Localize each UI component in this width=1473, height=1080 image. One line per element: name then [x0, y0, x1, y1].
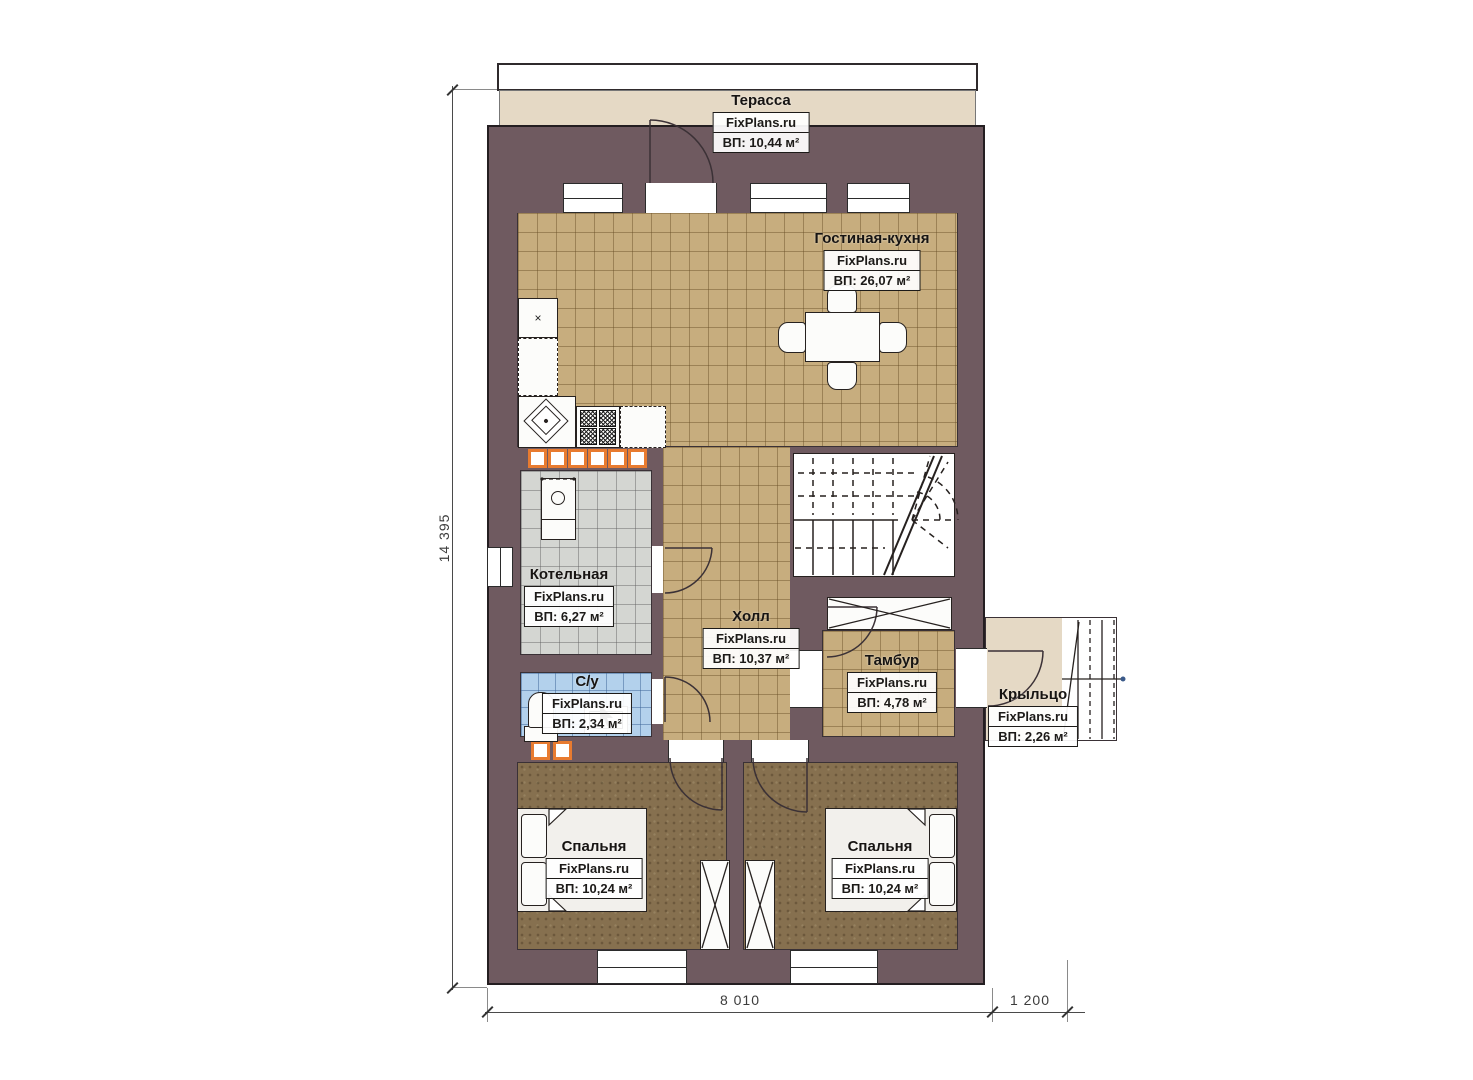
- pillow: [929, 862, 955, 906]
- hall-floor: [663, 447, 790, 740]
- dimension-width-porch-label: 1 200: [1000, 992, 1060, 1008]
- room-name: С/у: [575, 673, 598, 690]
- wc-door-opening: [652, 679, 663, 724]
- wall-marker: [608, 449, 627, 468]
- wall-marker: [528, 449, 547, 468]
- window: [790, 950, 878, 984]
- wall-marker: [588, 449, 607, 468]
- room-area: ВП: 2,26 м²: [989, 727, 1077, 746]
- pillow: [521, 814, 547, 858]
- room-area: ВП: 10,24 м²: [833, 879, 928, 898]
- kitchen-counter: [518, 338, 558, 396]
- brand-watermark: FixPlans.ru: [547, 859, 642, 879]
- brand-watermark: FixPlans.ru: [714, 113, 809, 133]
- brand-watermark: FixPlans.ru: [825, 251, 920, 271]
- dining-table: [805, 312, 880, 362]
- terrace-step-edge: [497, 63, 978, 91]
- wall-marker: [531, 741, 550, 760]
- brand-watermark: FixPlans.ru: [989, 707, 1077, 727]
- room-label-boiler: Котельная FixPlans.ru ВП: 6,27 м²: [524, 566, 614, 627]
- room-label-terrace: Терасса FixPlans.ru ВП: 10,44 м²: [713, 92, 810, 153]
- room-area: ВП: 10,37 м²: [704, 649, 799, 668]
- dining-chair: [778, 322, 806, 353]
- dimension-witness: [452, 987, 487, 988]
- room-area: ВП: 2,34 м²: [543, 714, 631, 733]
- window: [487, 547, 513, 587]
- room-info-box: FixPlans.ru ВП: 2,26 м²: [988, 706, 1078, 747]
- room-name: Котельная: [530, 566, 609, 583]
- dimension-line-height: [452, 86, 453, 990]
- brand-watermark: FixPlans.ru: [704, 629, 799, 649]
- room-area: ВП: 26,07 м²: [825, 271, 920, 290]
- room-label-porch: Крыльцо FixPlans.ru ВП: 2,26 м²: [988, 686, 1078, 747]
- dimension-witness: [992, 988, 993, 1022]
- wardrobe: [827, 597, 952, 630]
- dimension-witness: [452, 89, 497, 90]
- terrace-door-opening: [645, 183, 717, 213]
- pillow: [521, 862, 547, 906]
- porch-door-opening: [956, 648, 987, 708]
- boiler-floor: [520, 470, 652, 655]
- bedroom-left-door-opening: [668, 740, 724, 762]
- brand-watermark: FixPlans.ru: [543, 694, 631, 714]
- dimension-witness: [487, 988, 488, 1022]
- pillow: [929, 814, 955, 858]
- room-label-bedroom-left: Спальня FixPlans.ru ВП: 10,24 м²: [546, 838, 643, 899]
- window: [597, 950, 687, 984]
- window: [847, 183, 910, 213]
- room-label-living-kitchen: Гостиная-кухня FixPlans.ru ВП: 26,07 м²: [815, 230, 930, 291]
- fridge: ×: [518, 298, 558, 338]
- dimension-line-width: [485, 1012, 1085, 1013]
- room-info-box: FixPlans.ru ВП: 10,44 м²: [713, 112, 810, 153]
- room-info-box: FixPlans.ru ВП: 10,24 м²: [546, 858, 643, 899]
- wardrobe: [700, 860, 730, 950]
- dining-chair: [827, 362, 857, 390]
- room-info-box: FixPlans.ru ВП: 2,34 м²: [542, 693, 632, 734]
- room-info-box: FixPlans.ru ВП: 6,27 м²: [524, 586, 614, 627]
- floor-plan: ×: [0, 0, 1473, 1080]
- wall-marker: [568, 449, 587, 468]
- dimension-width-main-label: 8 010: [710, 992, 770, 1008]
- staircase: [793, 453, 955, 577]
- room-name: Терасса: [731, 92, 790, 109]
- bedroom-right-door-opening: [751, 740, 809, 762]
- room-info-box: FixPlans.ru ВП: 26,07 м²: [824, 250, 921, 291]
- room-name: Гостиная-кухня: [815, 230, 930, 247]
- room-name: Холл: [732, 608, 770, 625]
- room-area: ВП: 10,24 м²: [547, 879, 642, 898]
- window: [563, 183, 623, 213]
- room-area: ВП: 10,44 м²: [714, 133, 809, 152]
- brand-watermark: FixPlans.ru: [525, 587, 613, 607]
- room-name: Спальня: [848, 838, 913, 855]
- kitchen-counter: [620, 406, 666, 448]
- room-label-hall: Холл FixPlans.ru ВП: 10,37 м²: [703, 608, 800, 669]
- room-area: ВП: 6,27 м²: [525, 607, 613, 626]
- brand-watermark: FixPlans.ru: [848, 673, 936, 693]
- brand-watermark: FixPlans.ru: [833, 859, 928, 879]
- boiler-door-opening: [652, 546, 663, 593]
- room-info-box: FixPlans.ru ВП: 4,78 м²: [847, 672, 937, 713]
- room-label-bedroom-right: Спальня FixPlans.ru ВП: 10,24 м²: [832, 838, 929, 899]
- room-name: Спальня: [562, 838, 627, 855]
- stove: [576, 406, 620, 448]
- wardrobe: [745, 860, 775, 950]
- room-name: Тамбур: [865, 652, 919, 669]
- wall-marker: [553, 741, 572, 760]
- room-label-vestibule: Тамбур FixPlans.ru ВП: 4,78 м²: [847, 652, 937, 713]
- room-area: ВП: 4,78 м²: [848, 693, 936, 712]
- room-name: Крыльцо: [999, 686, 1067, 703]
- dining-chair: [879, 322, 907, 353]
- room-info-box: FixPlans.ru ВП: 10,37 м²: [703, 628, 800, 669]
- room-info-box: FixPlans.ru ВП: 10,24 м²: [832, 858, 929, 899]
- dimension-height-label: 14 395: [436, 508, 452, 568]
- room-label-wc: С/у FixPlans.ru ВП: 2,34 м²: [542, 673, 632, 734]
- window: [750, 183, 827, 213]
- boiler-unit: [541, 478, 576, 540]
- wall-marker: [548, 449, 567, 468]
- wall-marker: [628, 449, 647, 468]
